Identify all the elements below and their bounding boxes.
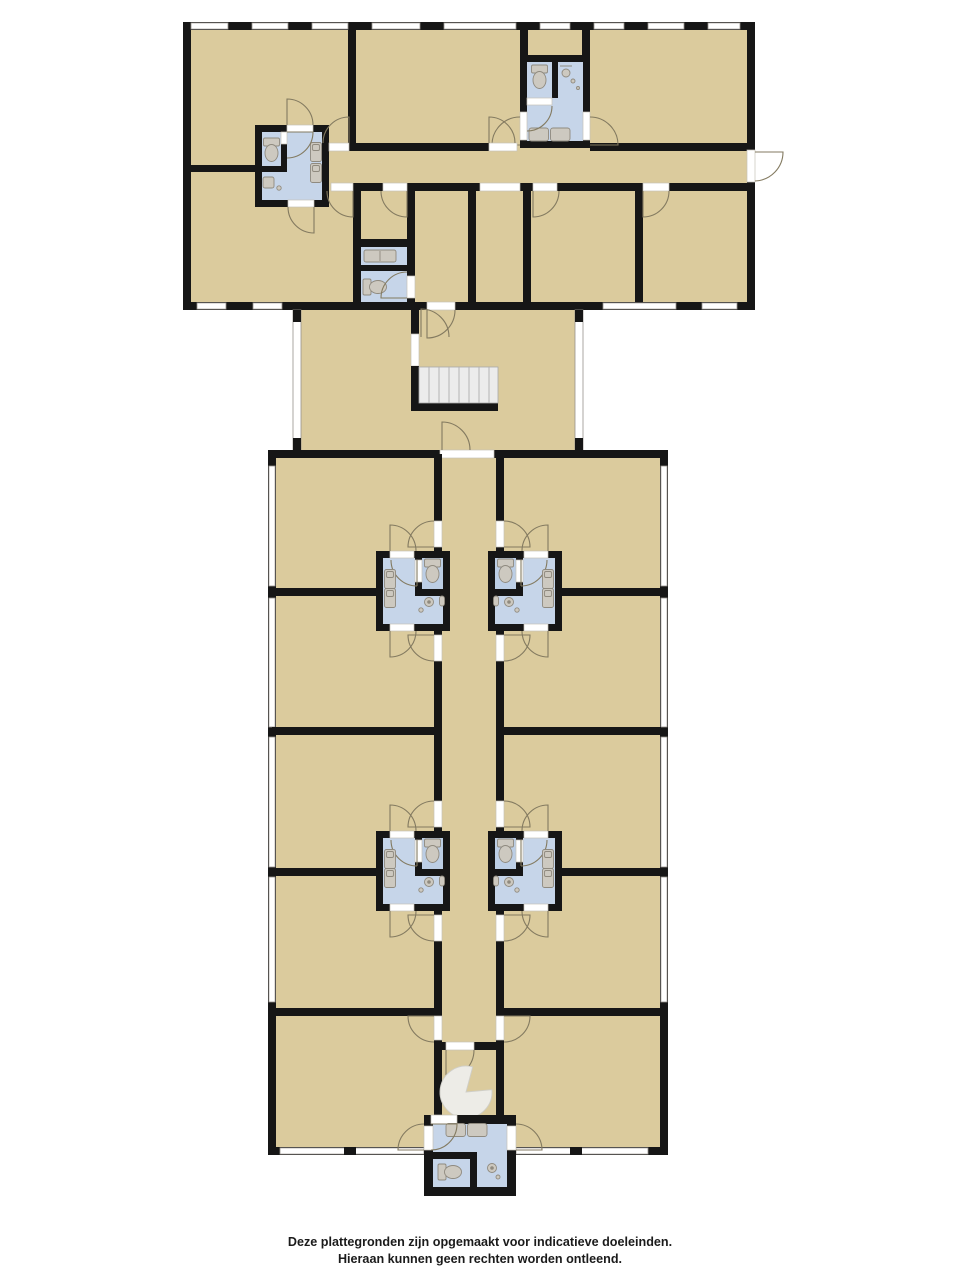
- toilet-icon: [264, 138, 280, 162]
- sink-tap-icon: [277, 186, 281, 190]
- window: [575, 310, 583, 450]
- door-opening: [427, 302, 455, 310]
- shower-head-icon: [562, 69, 570, 77]
- door-opening: [480, 183, 520, 191]
- door-opening: [424, 1126, 433, 1150]
- shower-drain-icon: [577, 87, 580, 90]
- toilet-icon: [532, 65, 548, 89]
- door-opening: [411, 334, 419, 366]
- south-wing: [268, 422, 668, 1196]
- door-opening: [440, 450, 494, 458]
- disclaimer-line-2: Hieraan kunnen geen rechten worden ontle…: [0, 1251, 960, 1268]
- cabinet-icon: [311, 164, 322, 183]
- door-opening: [331, 183, 353, 191]
- door-opening: [288, 200, 314, 207]
- door-opening: [507, 1126, 516, 1150]
- entrance-door-opening: [747, 150, 755, 182]
- vestibule: [434, 1042, 504, 1119]
- door-opening: [431, 1115, 457, 1124]
- shower-drain-icon: [488, 1164, 497, 1173]
- north-wing: [183, 22, 783, 310]
- door-opening: [533, 183, 557, 191]
- door-opening: [496, 1016, 504, 1040]
- disclaimer: Deze plattegronden zijn opgemaakt voor i…: [0, 1234, 960, 1267]
- door-opening: [383, 183, 407, 191]
- door-opening: [407, 276, 415, 298]
- entrance-door-swing: [755, 152, 783, 181]
- sink-icon: [263, 177, 274, 188]
- shower-drain-icon: [571, 79, 575, 83]
- door-opening: [287, 125, 313, 132]
- stack-wet-rooms: [361, 247, 415, 302]
- door-opening: [489, 143, 517, 151]
- shower-drain-icon: [496, 1175, 500, 1179]
- window-band-north: [191, 23, 740, 29]
- floor-plan-page: Deze plattegronden zijn opgemaakt voor i…: [0, 0, 960, 1280]
- door-opening: [446, 1042, 474, 1050]
- straight-staircase: [411, 366, 498, 411]
- door-opening: [329, 143, 349, 151]
- toilet-icon: [438, 1164, 462, 1180]
- door-opening: [281, 132, 287, 144]
- link-corridor: [293, 302, 583, 450]
- disclaimer-line-1: Deze plattegronden zijn opgemaakt voor i…: [0, 1234, 960, 1251]
- window: [293, 310, 301, 450]
- door-opening: [583, 112, 590, 140]
- door-opening: [520, 112, 527, 140]
- door-opening: [434, 1016, 442, 1040]
- cabinet-icon: [311, 143, 322, 162]
- floor-plan-drawing: [0, 0, 960, 1280]
- door-opening: [643, 183, 669, 191]
- door-opening: [527, 98, 552, 105]
